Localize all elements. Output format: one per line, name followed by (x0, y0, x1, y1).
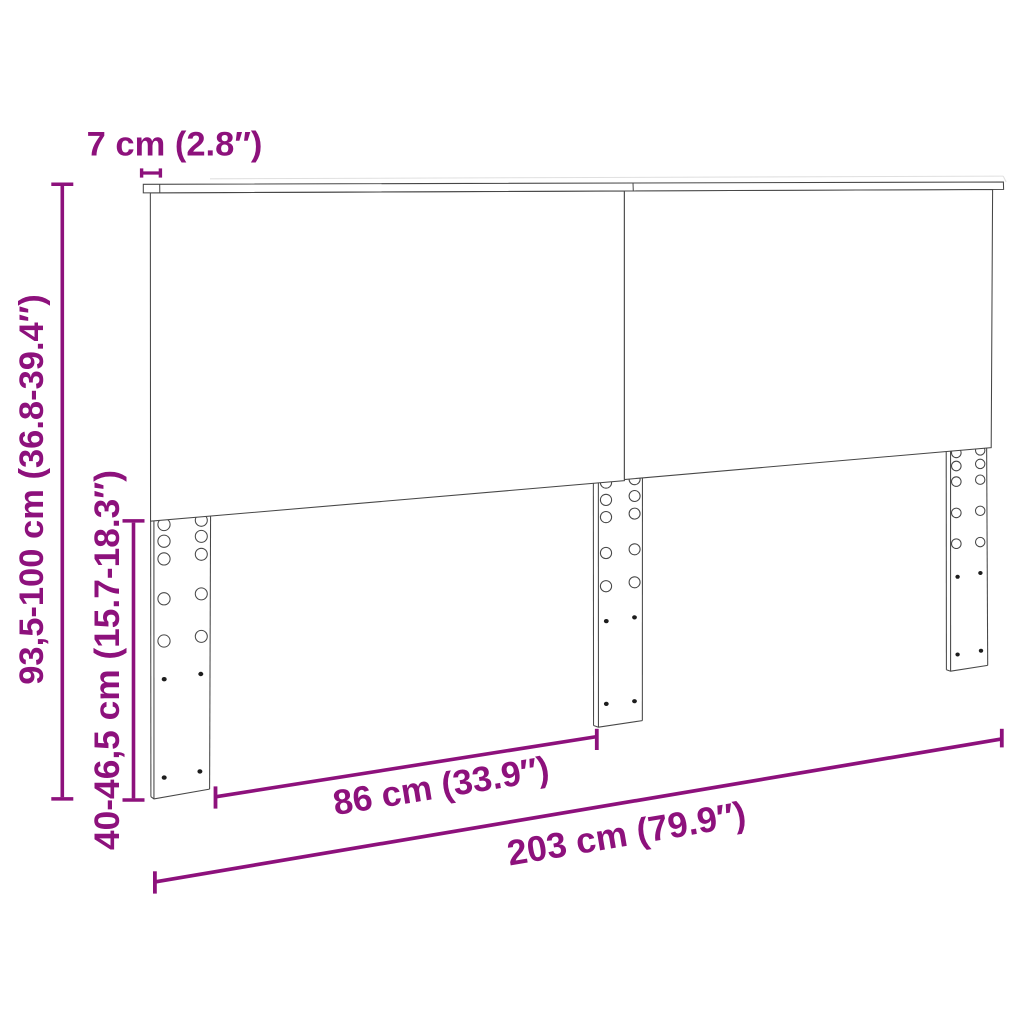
svg-text:7 cm (2.8″): 7 cm (2.8″) (87, 126, 263, 164)
svg-text:40-46,5 cm (15.7-18.3″): 40-46,5 cm (15.7-18.3″) (88, 470, 127, 850)
svg-text:203 cm (79.9″): 203 cm (79.9″) (504, 794, 749, 874)
svg-text:93,5-100 cm (36.8-39.4″): 93,5-100 cm (36.8-39.4″) (13, 294, 51, 685)
